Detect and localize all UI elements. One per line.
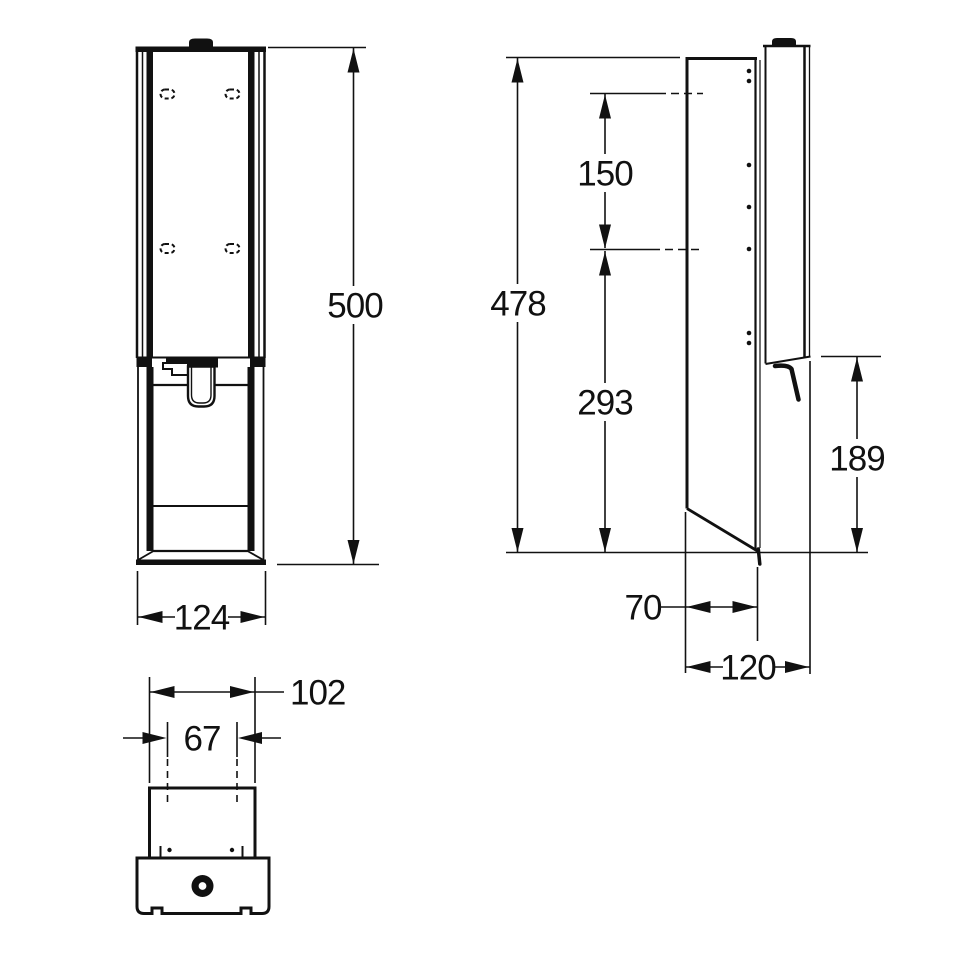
dim-front-width: 124 bbox=[138, 571, 266, 637]
dim-side-height: 478 bbox=[490, 58, 868, 553]
front-view bbox=[136, 39, 267, 566]
front-mounting-slots bbox=[161, 90, 240, 254]
dim-side-total-depth: 120 bbox=[686, 361, 811, 687]
dim-side-lower-span: 293 bbox=[577, 251, 632, 552]
front-top-cap bbox=[189, 39, 213, 48]
side-door-panel bbox=[686, 58, 761, 564]
dim-side-flap-height-label: 189 bbox=[829, 439, 884, 478]
dim-side-lower-span-label: 293 bbox=[577, 383, 632, 422]
side-top-cap bbox=[772, 38, 796, 46]
side-lever-hook bbox=[775, 366, 799, 400]
dim-bottom-body-width-label: 102 bbox=[290, 673, 345, 712]
dim-side-flap-depth-label: 70 bbox=[625, 588, 662, 627]
side-cabinet-body bbox=[763, 38, 811, 364]
bottom-recess-body bbox=[150, 788, 256, 858]
dim-front-width-label: 124 bbox=[174, 598, 230, 637]
bottom-spout bbox=[192, 875, 214, 897]
dim-bottom-recess-width-label: 67 bbox=[184, 719, 221, 758]
dim-side-hole-spacing: 150 bbox=[577, 94, 703, 250]
dim-front-height: 500 bbox=[268, 48, 383, 565]
side-fixing-dots bbox=[747, 69, 752, 346]
dim-front-height-label: 500 bbox=[327, 286, 383, 325]
dim-side-hole-spacing-label: 150 bbox=[577, 154, 633, 193]
front-nozzle bbox=[188, 360, 215, 407]
front-release-latch bbox=[163, 363, 188, 375]
dim-side-height-label: 478 bbox=[490, 284, 545, 323]
side-view bbox=[686, 38, 811, 564]
dim-bottom-body-width: 102 bbox=[150, 673, 346, 783]
dim-side-total-depth-label: 120 bbox=[720, 648, 776, 687]
front-mounting-rails bbox=[137, 47, 265, 358]
dispenser-dimension-drawing: 500 124 478 bbox=[0, 0, 960, 960]
dimension-annotations: 500 124 478 bbox=[123, 48, 885, 806]
bottom-view bbox=[137, 788, 269, 914]
dim-side-flap-height: 189 bbox=[821, 357, 885, 553]
technical-drawing-canvas: 500 124 478 bbox=[0, 0, 960, 960]
